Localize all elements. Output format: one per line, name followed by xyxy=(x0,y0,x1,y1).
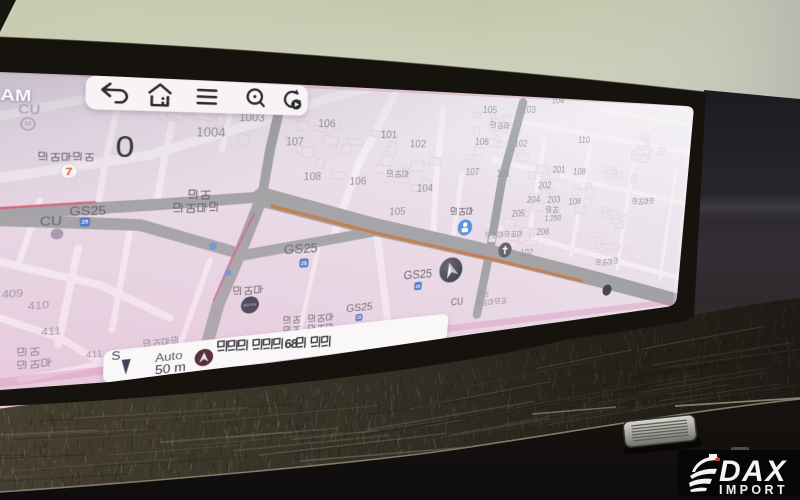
svg-text:IMPORT: IMPORT xyxy=(719,483,788,496)
